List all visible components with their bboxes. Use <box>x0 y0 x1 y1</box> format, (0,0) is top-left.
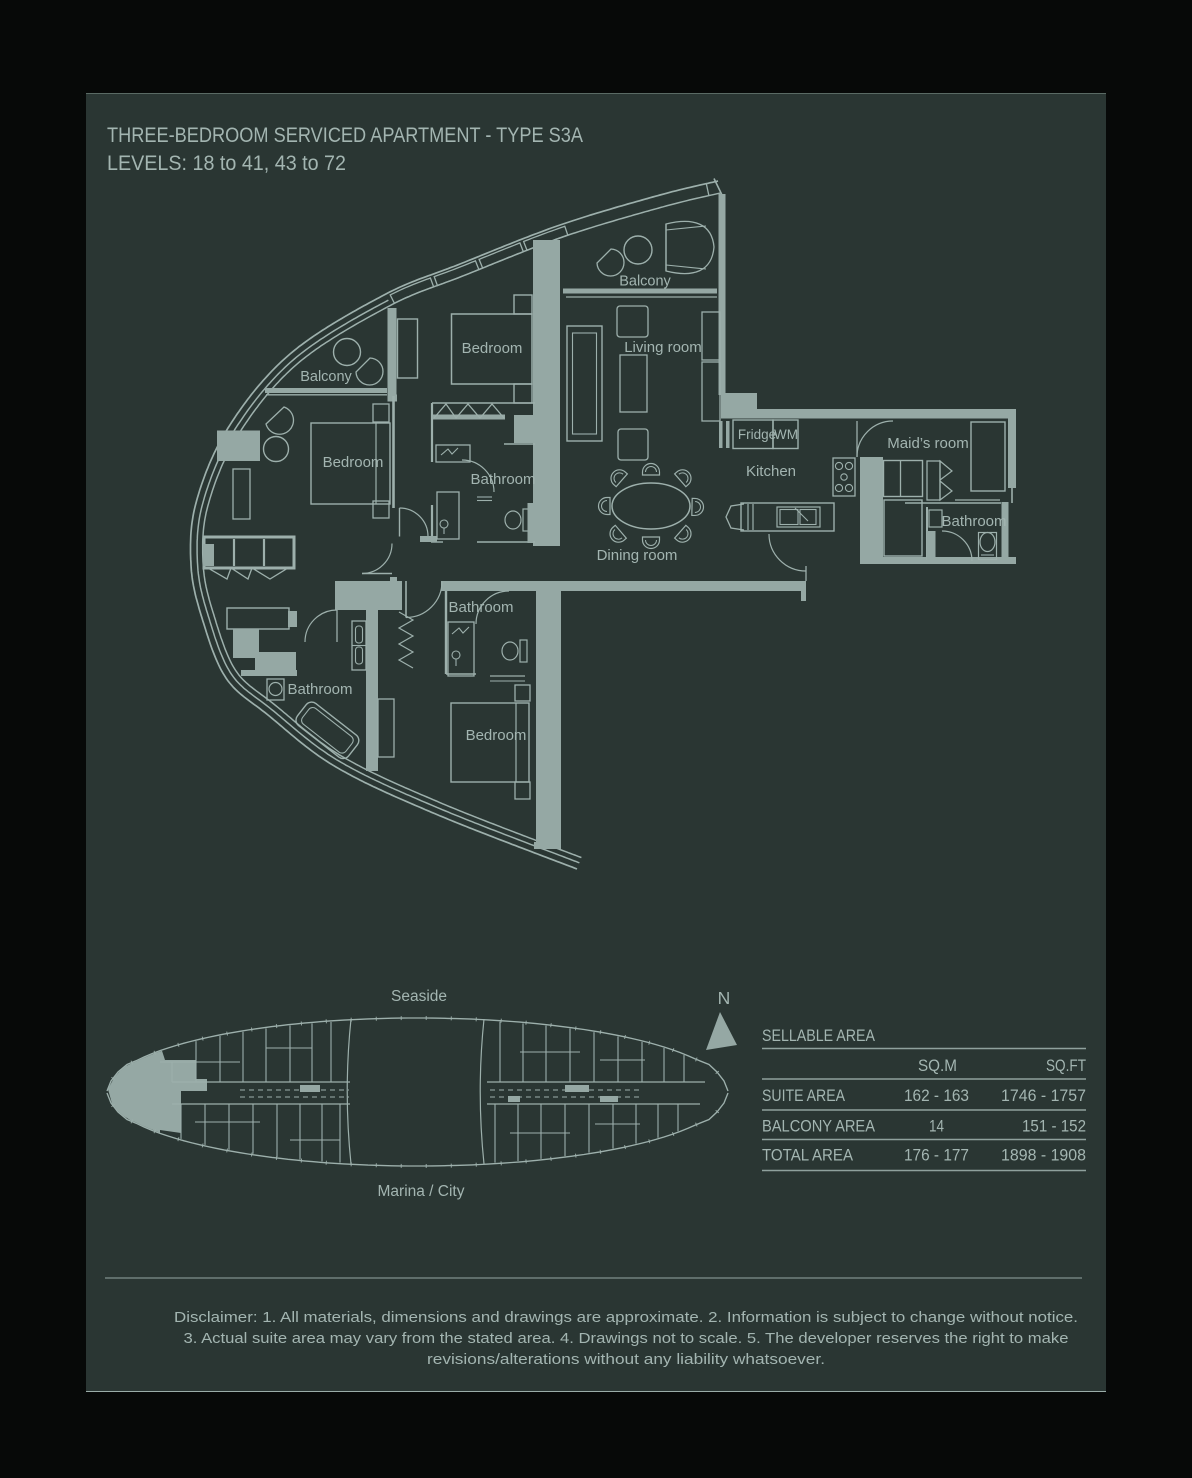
svg-text:Bathroom: Bathroom <box>287 681 352 698</box>
svg-text:Dining room: Dining room <box>597 547 678 564</box>
svg-text:Bathroom: Bathroom <box>448 599 513 616</box>
svg-text:Kitchen: Kitchen <box>746 463 796 480</box>
svg-text:Bedroom: Bedroom <box>466 727 527 744</box>
svg-text:151 - 152: 151 - 152 <box>1022 1118 1086 1136</box>
svg-text:3. Actual suite area may vary: 3. Actual suite area may vary from the s… <box>184 1331 1069 1347</box>
svg-text:1898 - 1908: 1898 - 1908 <box>1001 1147 1086 1165</box>
svg-text:Fridge: Fridge <box>738 427 776 442</box>
svg-text:Bathroom: Bathroom <box>470 471 535 488</box>
svg-text:Bedroom: Bedroom <box>462 340 523 357</box>
svg-text:162 - 163: 162 - 163 <box>904 1087 969 1105</box>
svg-text:LEVELS: 18 to 41, 43 to 72: LEVELS: 18 to 41, 43 to 72 <box>107 152 346 175</box>
svg-text:Bedroom: Bedroom <box>323 454 384 471</box>
svg-text:Maid’s room: Maid’s room <box>887 435 968 452</box>
svg-text:Bathroom: Bathroom <box>941 513 1006 530</box>
svg-text:BALCONY AREA: BALCONY AREA <box>762 1118 875 1136</box>
svg-text:WM: WM <box>774 427 798 442</box>
svg-text:Balcony: Balcony <box>619 274 671 290</box>
svg-text:Marina / City: Marina / City <box>378 1183 465 1200</box>
svg-text:N: N <box>718 988 731 1008</box>
svg-text:1746 - 1757: 1746 - 1757 <box>1001 1087 1086 1105</box>
svg-text:revisions/alterations without: revisions/alterations without any liabil… <box>427 1352 825 1368</box>
svg-text:THREE-BEDROOM SERVICED APARTME: THREE-BEDROOM SERVICED APARTMENT - TYPE … <box>107 124 583 147</box>
svg-text:176 - 177: 176 - 177 <box>904 1147 969 1165</box>
svg-text:SQ.FT: SQ.FT <box>1046 1057 1086 1075</box>
svg-text:TOTAL AREA: TOTAL AREA <box>762 1147 853 1165</box>
svg-text:Balcony: Balcony <box>300 369 352 385</box>
svg-text:SELLABLE AREA: SELLABLE AREA <box>762 1027 875 1045</box>
svg-text:SQ.M: SQ.M <box>918 1057 957 1075</box>
svg-text:SUITE AREA: SUITE AREA <box>762 1087 845 1105</box>
svg-text:14: 14 <box>929 1118 944 1136</box>
svg-text:Living room: Living room <box>624 339 702 356</box>
svg-text:Seaside: Seaside <box>391 988 447 1005</box>
svg-text:Disclaimer: 1. All materials,: Disclaimer: 1. All materials, dimensions… <box>174 1310 1078 1326</box>
